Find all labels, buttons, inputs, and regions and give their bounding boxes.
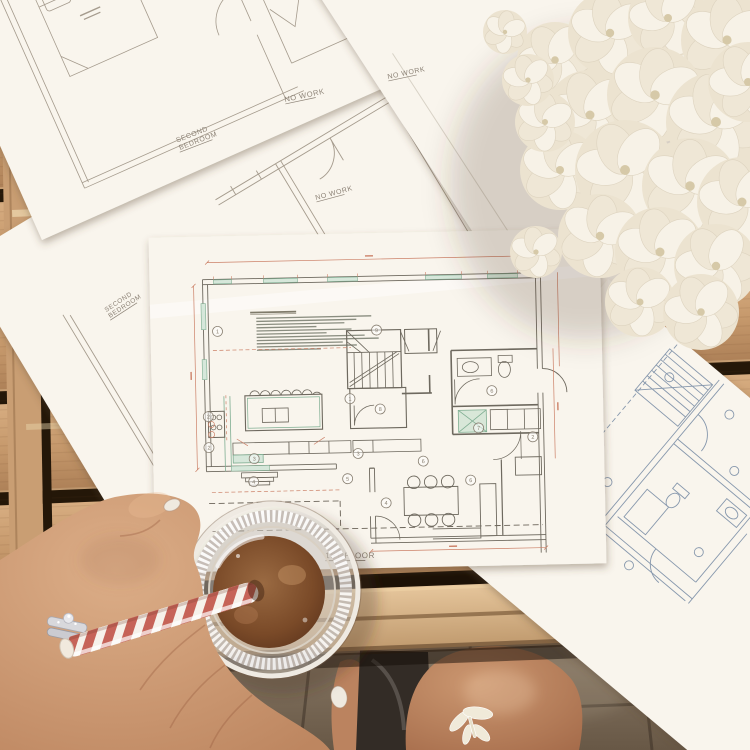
svg-text:3: 3 — [253, 457, 256, 463]
svg-text:4: 4 — [252, 480, 255, 486]
svg-text:2: 2 — [531, 435, 534, 441]
svg-text:4: 4 — [385, 501, 388, 507]
svg-text:6: 6 — [469, 478, 472, 484]
svg-text:3: 3 — [357, 451, 360, 457]
scene-canvas: 1223344566678921 1ST FLOOR SECOND BEDROO… — [0, 0, 750, 750]
svg-text:2: 2 — [207, 446, 210, 452]
svg-text:8: 8 — [379, 407, 382, 413]
svg-text:2: 2 — [207, 415, 210, 421]
photo-flatlay-scene: 1223344566678921 1ST FLOOR SECOND BEDROO… — [0, 0, 750, 750]
svg-text:9: 9 — [375, 328, 378, 334]
svg-text:1: 1 — [348, 397, 351, 403]
svg-text:5: 5 — [346, 477, 349, 483]
svg-text:1: 1 — [216, 329, 219, 335]
svg-text:6: 6 — [422, 459, 425, 465]
svg-text:7: 7 — [477, 426, 480, 432]
svg-text:6: 6 — [490, 389, 493, 395]
